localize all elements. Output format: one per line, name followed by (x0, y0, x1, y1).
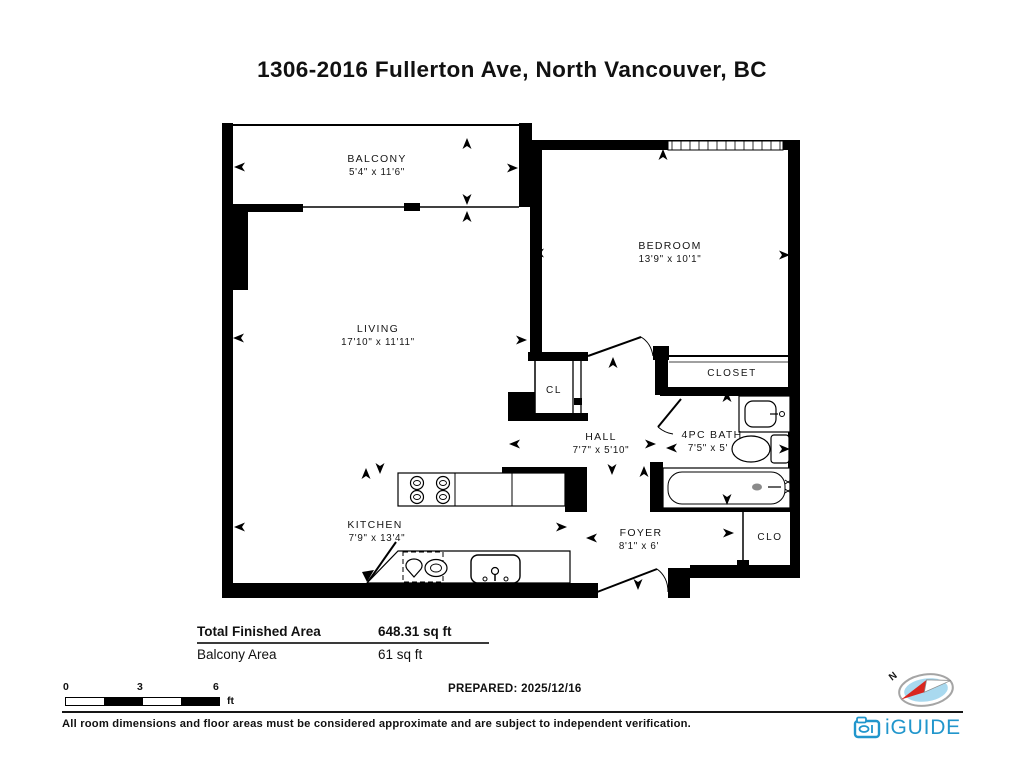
clo-door-tick (737, 560, 749, 568)
room-label-foyer: FOYER (620, 527, 663, 539)
iguide-camera-icon (853, 716, 881, 740)
room-dims-balcony: 5'4" x 11'6" (349, 167, 405, 178)
room-dims-bedroom: 13'9" x 10'1" (639, 254, 702, 265)
room-label-bedroom: BEDROOM (638, 240, 701, 252)
room-label-living: LIVING (357, 323, 399, 335)
room-dims-bath: 7'5" x 5' (688, 443, 728, 454)
scale-bar: 0 3 6 ft (62, 681, 262, 707)
scale-unit-label: ft (227, 695, 234, 707)
room-label-balcony: BALCONY (347, 153, 406, 165)
room-label-clo: CLO (757, 532, 782, 543)
wall-layer (222, 123, 800, 598)
room-dims-kitchen: 7'9" x 13'4" (349, 533, 406, 544)
total-area-value: 648.31 sq ft (378, 624, 452, 639)
balcony-area-label: Balcony Area (197, 647, 378, 662)
prepared-date: PREPARED: 2025/12/16 (448, 683, 582, 695)
scale-bar-segments (65, 697, 220, 706)
table-row: Balcony Area 61 sq ft (197, 644, 489, 665)
disclaimer: All room dimensions and floor areas must… (62, 718, 822, 730)
room-label-bath: 4PC BATH (682, 429, 743, 441)
dimension-arrows (233, 138, 790, 590)
room-label-cl: CL (546, 385, 562, 396)
room-dims-hall: 7'7" x 5'10" (573, 445, 630, 456)
room-dims-foyer: 8'1" x 6' (619, 541, 659, 552)
balcony-area-value: 61 sq ft (378, 647, 422, 662)
scale-tick-3: 3 (137, 681, 143, 693)
total-area-label: Total Finished Area (197, 624, 378, 639)
floorplan-page: 1306-2016 Fullerton Ave, North Vancouver… (0, 0, 1024, 768)
area-summary-table: Total Finished Area 648.31 sq ft Balcony… (197, 621, 489, 665)
brand-logo: iGUIDE (853, 716, 961, 740)
room-dims-living: 17'10" x 11'11" (341, 337, 415, 348)
cl-door-tick (574, 398, 582, 405)
scale-tick-6: 6 (213, 681, 219, 693)
table-row: Total Finished Area 648.31 sq ft (197, 621, 489, 642)
brand-name: iGUIDE (885, 716, 961, 740)
room-label-closet: CLOSET (707, 368, 757, 379)
scale-tick-0: 0 (63, 681, 69, 693)
compass-icon: N (880, 663, 970, 713)
room-label-hall: HALL (585, 431, 616, 443)
bedroom-window (668, 141, 783, 150)
floor-plan-svg: BALCONY 5'4" x 11'6" BEDROOM 13'9" x 10'… (0, 0, 1024, 768)
footer-divider (62, 711, 963, 713)
room-label-kitchen: KITCHEN (347, 519, 402, 531)
compass-north-label: N (887, 670, 899, 683)
